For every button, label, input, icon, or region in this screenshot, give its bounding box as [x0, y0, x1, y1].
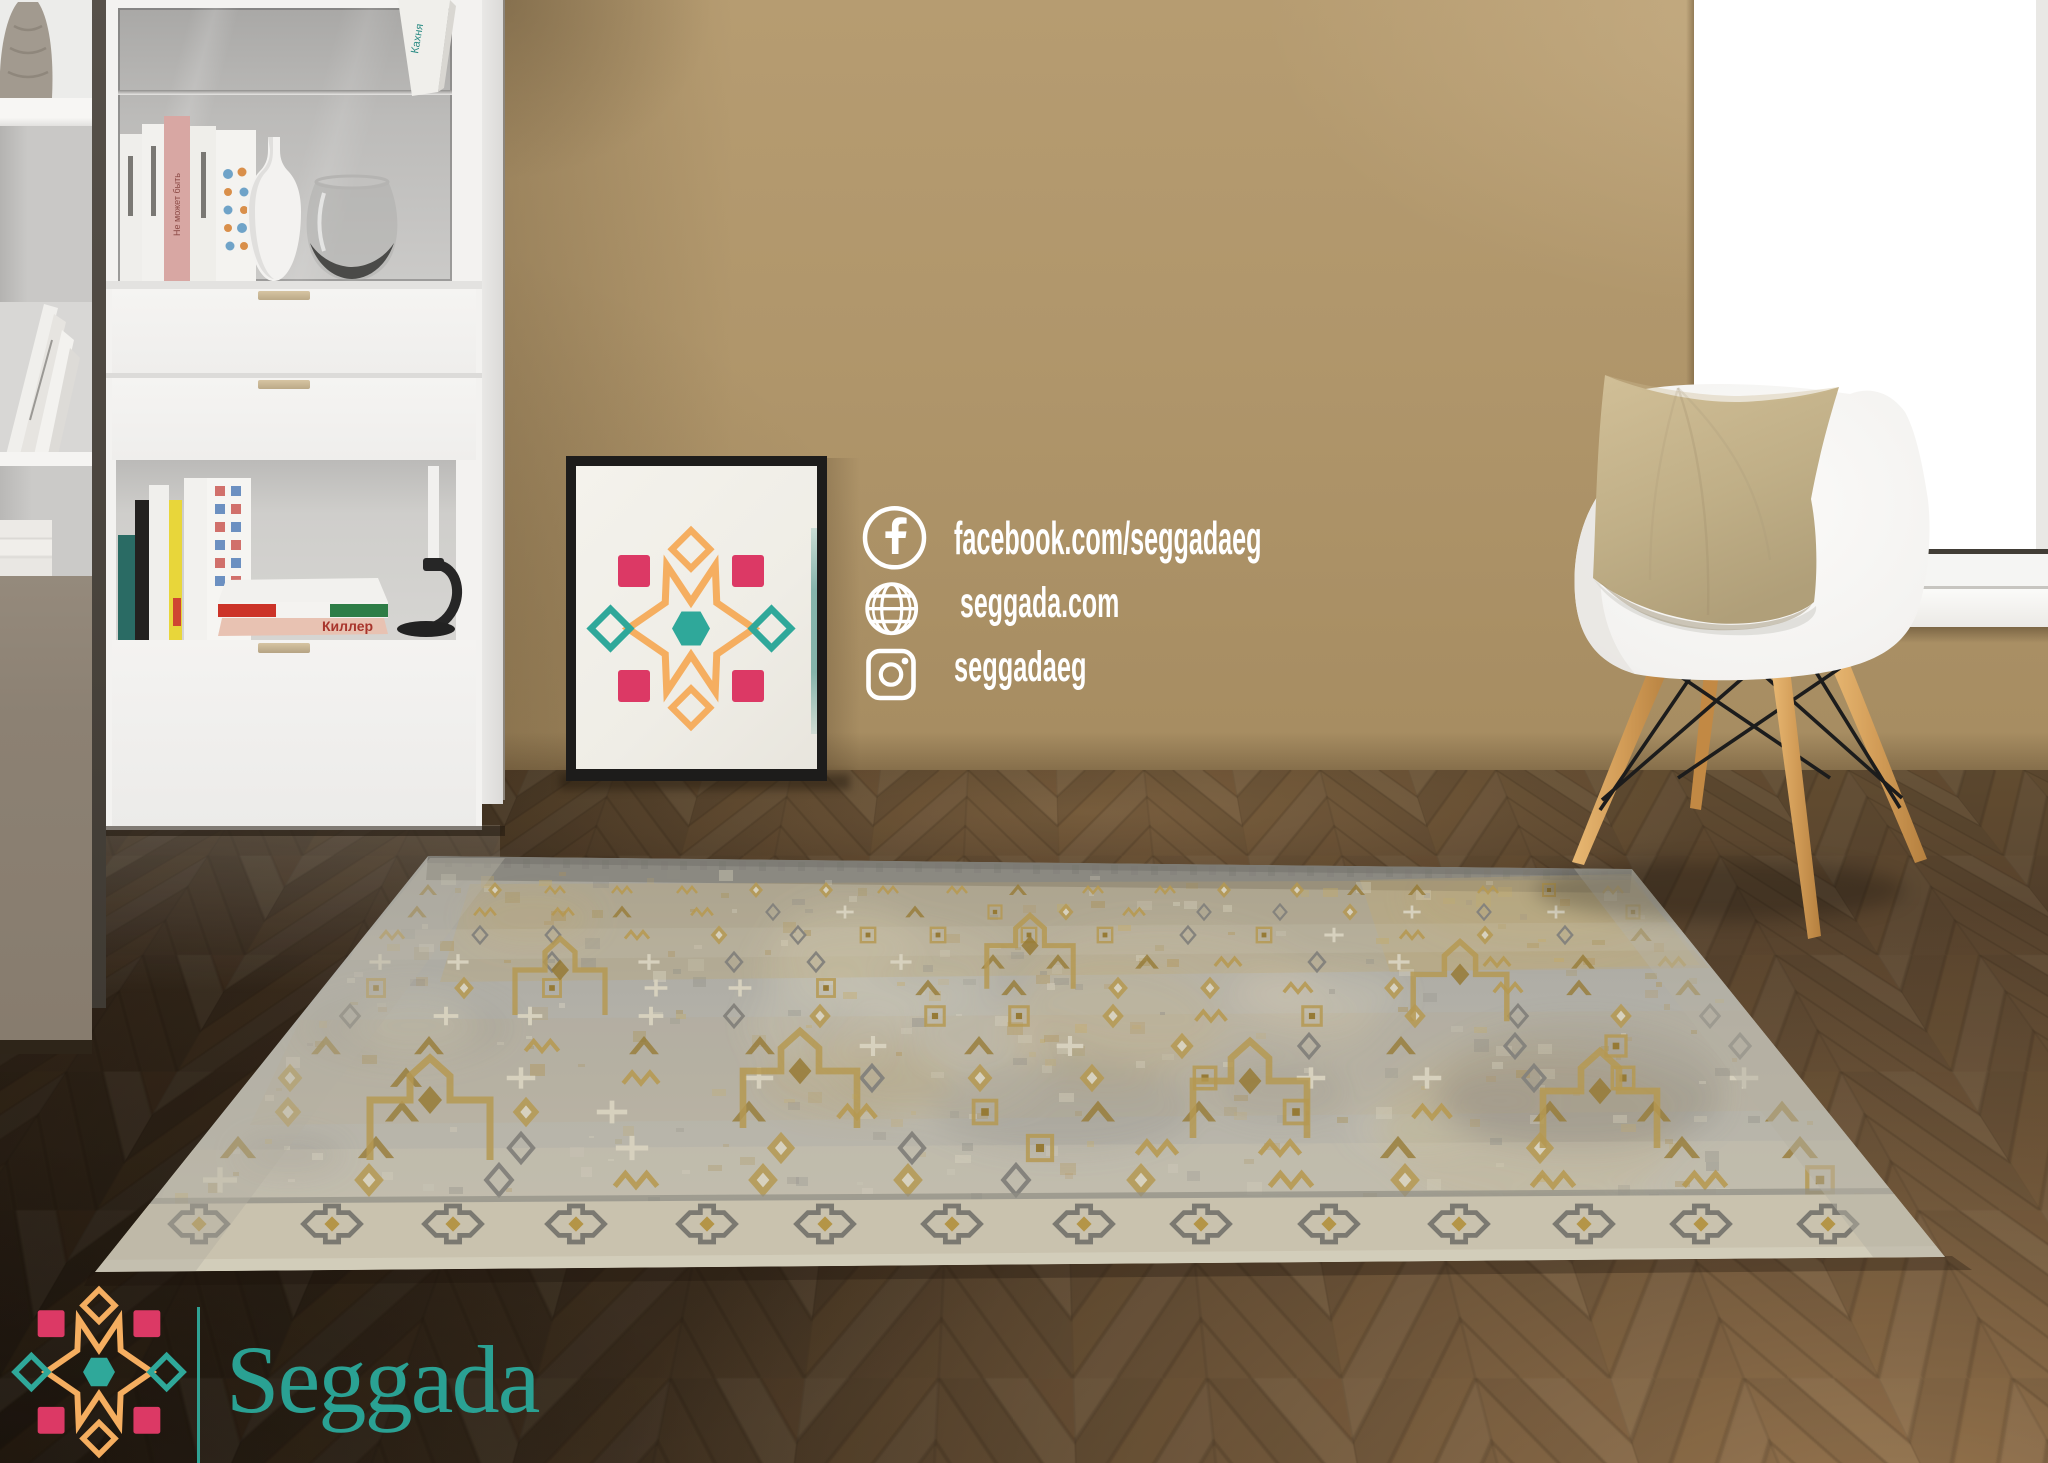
svg-text:Киллер: Киллер: [322, 618, 373, 634]
svg-text:facebook.com/seggadaeg: facebook.com/seggadaeg: [954, 512, 1262, 564]
svg-text:seggadaeg: seggadaeg: [954, 643, 1087, 691]
svg-text:seggada.com: seggada.com: [960, 579, 1119, 627]
svg-text:Не может быть: Не может быть: [172, 173, 182, 236]
